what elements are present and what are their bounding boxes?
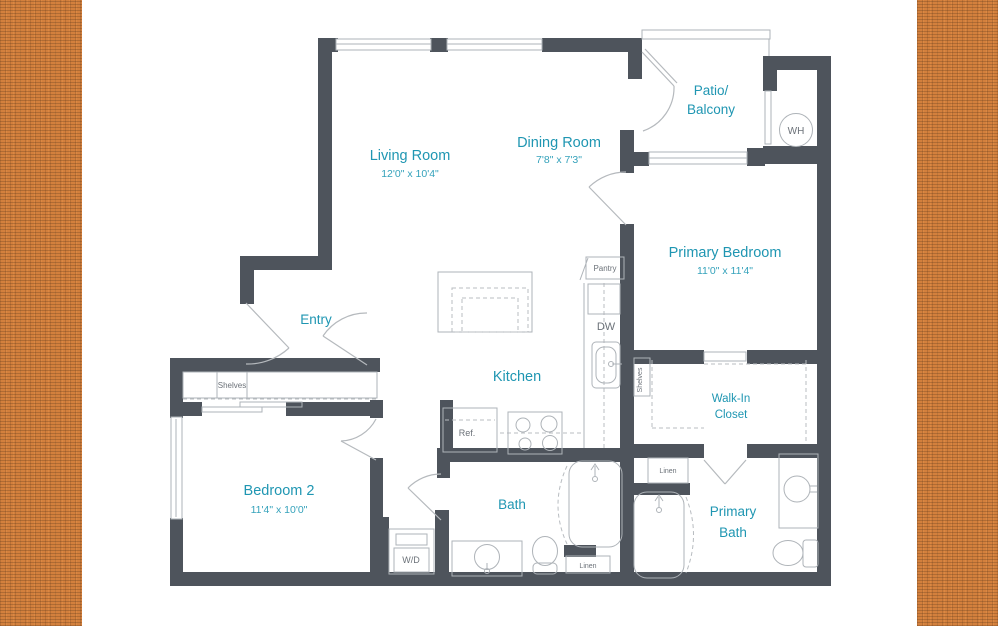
water-heater-label: WH <box>788 126 805 137</box>
bedroom-2-label: Bedroom 2 <box>244 483 315 499</box>
patio-door-arc <box>643 86 674 131</box>
wall-segment <box>318 38 338 52</box>
wall-segment <box>170 402 202 416</box>
bedroom2-door-leaf <box>341 441 376 460</box>
wall-segment <box>542 38 642 52</box>
dishwasher-label: DW <box>597 321 616 333</box>
wall-segment <box>620 354 634 586</box>
linen-bath-label: Linen <box>579 563 596 570</box>
stove-burner <box>541 416 557 432</box>
bath-vanity <box>452 541 522 576</box>
bedroom2-door-arc <box>341 419 376 441</box>
patio-label-line2: Balcony <box>687 102 735 117</box>
wall-segment <box>370 458 383 572</box>
bath-door-leaf <box>408 488 441 520</box>
dining-room-label: Dining Room <box>517 135 601 151</box>
primary-vanity <box>779 454 818 528</box>
bath-door-arc <box>408 474 441 488</box>
wall-segment <box>440 400 453 448</box>
patio-door-leaf <box>642 52 674 86</box>
primary-bath-label-line1: Primary <box>710 504 757 519</box>
primary-bath-door-leaf <box>725 460 746 484</box>
pantry-label: Pantry <box>593 264 616 273</box>
floorplan-drawing: Living Room 12'0" x 10'4" Dining Room 7'… <box>0 0 998 626</box>
closet-shelves-label: Shelves <box>218 381 246 390</box>
primary-bath-door-leaf <box>704 460 725 484</box>
primary-tub-drain <box>657 508 662 513</box>
entry-label: Entry <box>300 312 332 327</box>
primary-bedroom-dims: 11'0" x 11'4" <box>697 265 753 277</box>
kitchen-island-overhang <box>452 288 528 332</box>
wall-segment <box>633 152 649 166</box>
wall-segment <box>437 448 633 462</box>
walk-in-closet-label-line2: Closet <box>715 409 748 421</box>
wall-segment <box>620 224 634 354</box>
primary-bedroom-door-arc <box>589 172 626 187</box>
wall-segment <box>170 518 183 586</box>
stove-burner <box>516 418 530 432</box>
primary-shower-curve <box>686 497 694 573</box>
patio-edge <box>642 30 770 39</box>
walk-in-shelves-label: Shelves <box>637 367 644 392</box>
wall-segment <box>286 402 383 416</box>
wall-segment <box>435 510 449 577</box>
wall-segment <box>370 400 383 418</box>
patio-label-line1: Patio/ <box>694 83 729 98</box>
pantry-door <box>580 258 588 280</box>
bath-shower-curve <box>558 466 567 544</box>
wall-segment <box>430 38 448 52</box>
wall-segment <box>747 148 765 166</box>
wall-segment <box>747 444 818 458</box>
refrigerator-label: Ref. <box>459 428 476 438</box>
bedroom-2-dims: 11'4" x 10'0" <box>251 504 308 516</box>
walk-in-closet-label-line1: Walk-In <box>712 393 751 405</box>
kitchen-label: Kitchen <box>493 369 541 385</box>
wall-segment <box>747 350 818 364</box>
wall-segment <box>628 51 642 79</box>
washer-dryer-label: W/D <box>402 555 420 565</box>
wall-segment <box>170 358 380 372</box>
dining-room-dims: 7'8" x 7'3" <box>536 154 582 166</box>
linen-primary-label: Linen <box>659 468 676 475</box>
washer-dryer-top <box>396 534 427 545</box>
closet-shelf-box <box>183 372 377 398</box>
kitchen-island-overhang <box>462 298 518 332</box>
patio-door-leaf <box>645 49 677 83</box>
wall-segment <box>620 130 634 173</box>
wall-segment <box>170 572 831 586</box>
primary-bedroom-label: Primary Bedroom <box>669 245 782 261</box>
living-room-dims: 12'0" x 10'4" <box>381 168 439 180</box>
living-room-label: Living Room <box>370 148 451 164</box>
bath-toilet-bowl <box>533 537 558 566</box>
wall-segment <box>763 146 819 164</box>
primary-sink <box>784 476 810 502</box>
bath-tub-drain <box>593 477 598 482</box>
primary-toilet-tank <box>803 540 818 567</box>
wall-segment <box>633 444 704 458</box>
wall-segment <box>763 56 777 91</box>
wall-segment <box>633 350 704 364</box>
bath-label: Bath <box>498 497 526 512</box>
primary-toilet-bowl <box>773 541 803 566</box>
primary-bedroom-door-leaf <box>589 187 626 225</box>
entry-door-leaf <box>246 303 289 348</box>
wall-segment <box>240 256 254 304</box>
wh-closet-door <box>765 91 771 144</box>
floorplan-page: Living Room 12'0" x 10'4" Dining Room 7'… <box>0 0 998 626</box>
wall-segment <box>318 38 332 268</box>
cased-opening <box>704 352 746 361</box>
wall-segment <box>817 56 831 586</box>
primary-bath-label-line2: Bath <box>719 525 747 540</box>
closet-sliding-door <box>202 407 262 412</box>
